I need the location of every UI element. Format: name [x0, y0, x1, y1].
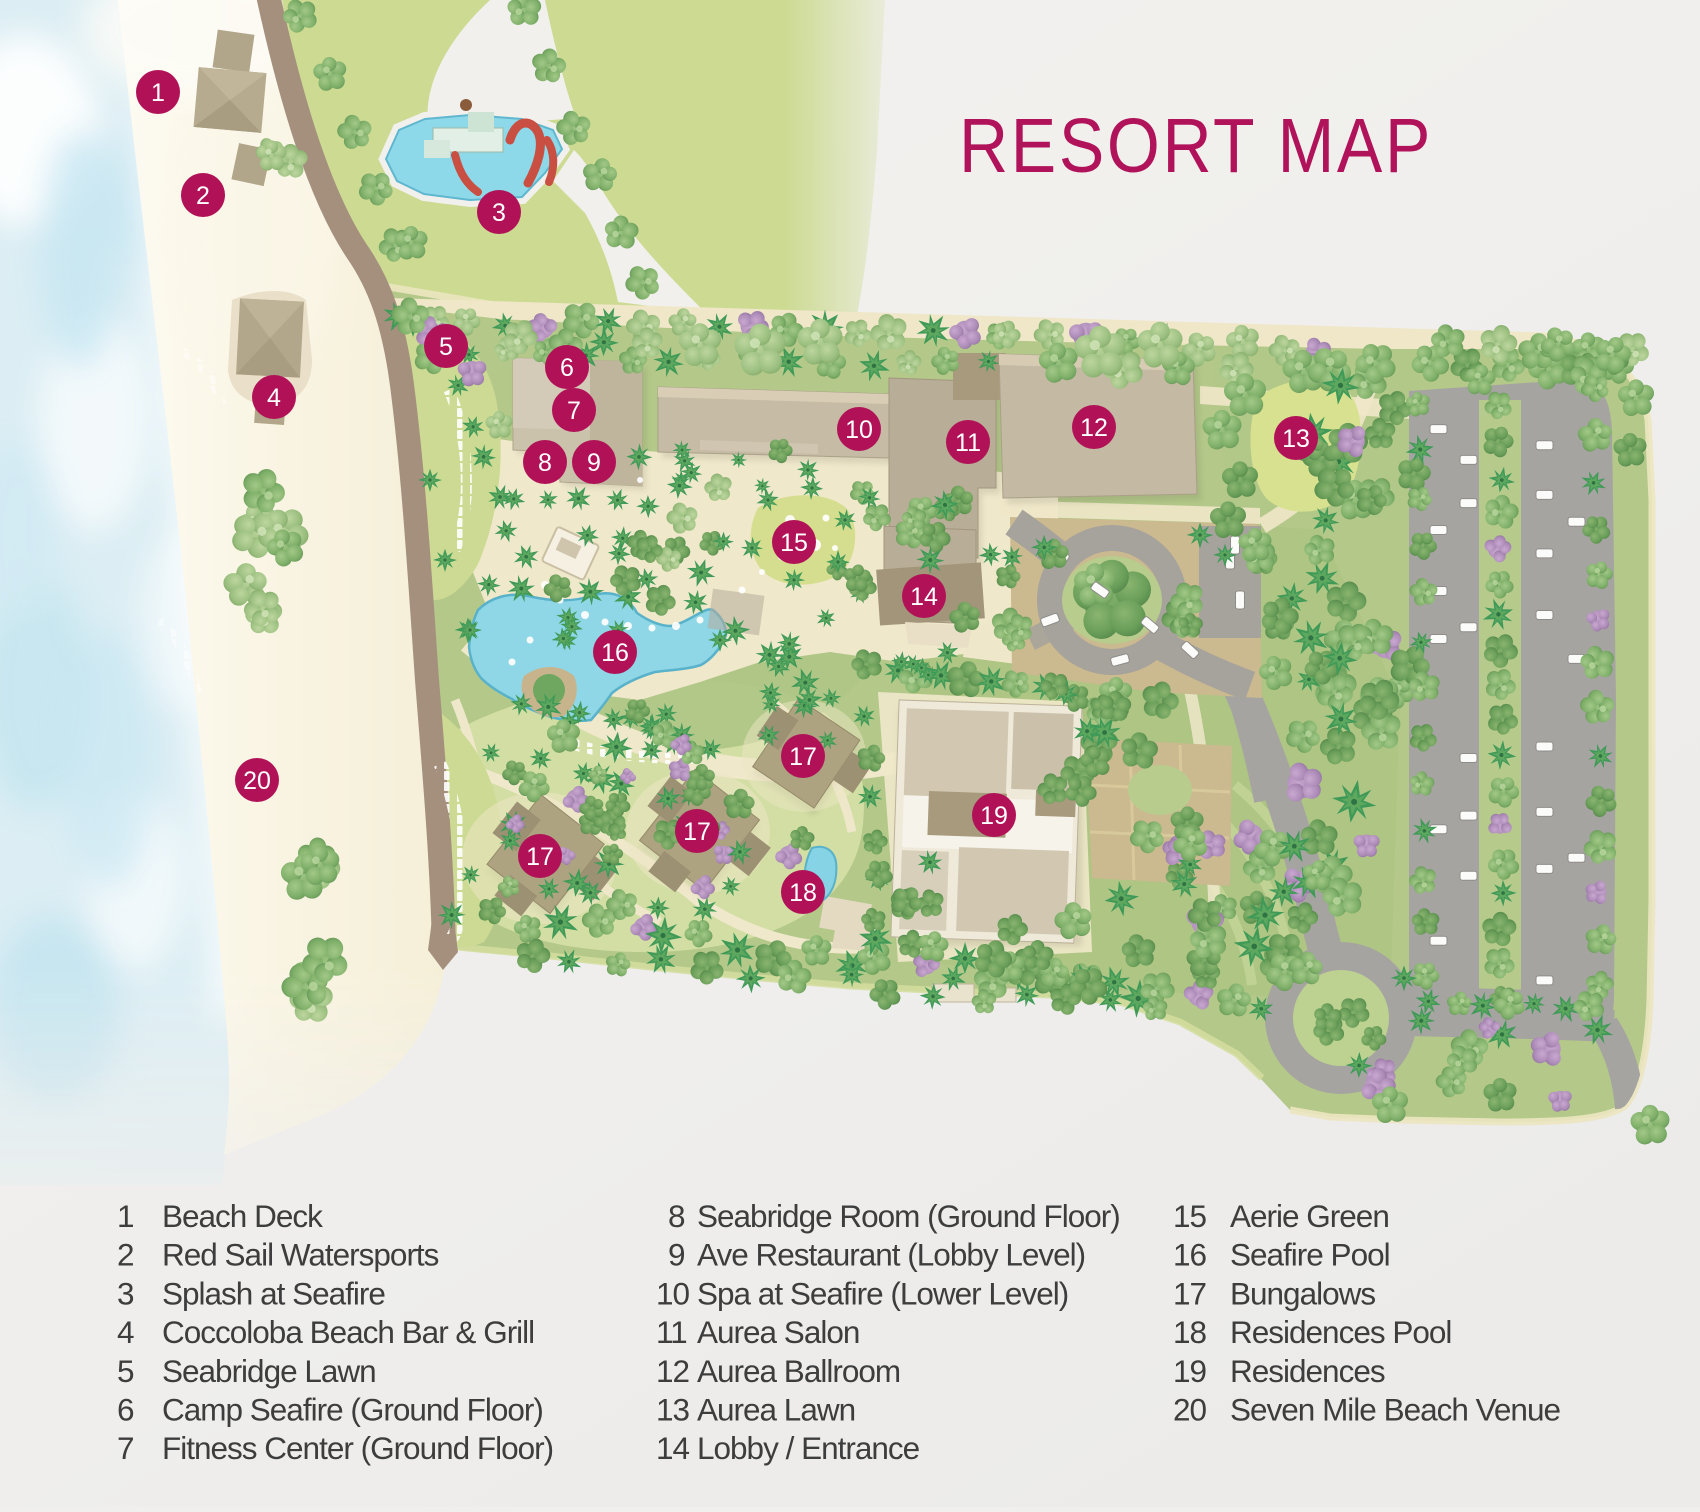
svg-text:20: 20: [1173, 1392, 1207, 1428]
svg-text:Seabridge Room (Ground Floor): Seabridge Room (Ground Floor): [697, 1198, 1120, 1234]
svg-text:7: 7: [117, 1430, 134, 1466]
svg-text:Beach Deck: Beach Deck: [162, 1198, 323, 1234]
svg-text:2: 2: [196, 182, 210, 210]
svg-text:Seven Mile Beach Venue: Seven Mile Beach Venue: [1230, 1392, 1560, 1428]
svg-text:17: 17: [526, 843, 554, 871]
svg-text:1: 1: [117, 1198, 134, 1234]
svg-text:9: 9: [587, 449, 601, 477]
svg-text:Red Sail Watersports: Red Sail Watersports: [162, 1237, 439, 1273]
svg-text:4: 4: [117, 1314, 134, 1350]
svg-text:6: 6: [117, 1392, 134, 1428]
svg-text:18: 18: [1173, 1314, 1207, 1350]
svg-text:4: 4: [267, 384, 281, 412]
svg-text:Residences Pool: Residences Pool: [1230, 1314, 1451, 1350]
svg-text:Aurea Salon: Aurea Salon: [697, 1314, 859, 1350]
svg-text:14: 14: [910, 583, 938, 611]
svg-text:17: 17: [789, 743, 817, 771]
svg-text:8: 8: [538, 449, 552, 477]
svg-text:7: 7: [567, 397, 581, 425]
svg-text:Bungalows: Bungalows: [1230, 1275, 1375, 1311]
svg-text:14: 14: [656, 1430, 690, 1466]
svg-text:Coccoloba Beach Bar & Grill: Coccoloba Beach Bar & Grill: [162, 1314, 534, 1350]
svg-text:10: 10: [845, 416, 873, 444]
svg-text:2: 2: [117, 1237, 134, 1273]
svg-text:3: 3: [492, 199, 506, 227]
svg-text:19: 19: [1173, 1353, 1207, 1389]
svg-text:12: 12: [1080, 414, 1108, 442]
svg-text:5: 5: [117, 1353, 134, 1389]
svg-text:Aurea Ballroom: Aurea Ballroom: [697, 1353, 900, 1389]
svg-text:Fitness Center (Ground Floor): Fitness Center (Ground Floor): [162, 1430, 553, 1466]
svg-text:Seabridge Lawn: Seabridge Lawn: [162, 1353, 376, 1389]
svg-text:6: 6: [560, 354, 574, 382]
svg-text:1: 1: [151, 79, 165, 107]
svg-text:15: 15: [780, 529, 808, 557]
svg-text:11: 11: [656, 1314, 687, 1350]
svg-text:13: 13: [656, 1392, 690, 1428]
svg-text:Lobby / Entrance: Lobby / Entrance: [697, 1430, 920, 1466]
svg-text:Residences: Residences: [1230, 1353, 1385, 1389]
svg-text:Splash at Seafire: Splash at Seafire: [162, 1275, 385, 1311]
svg-text:3: 3: [117, 1275, 134, 1311]
svg-text:9: 9: [668, 1237, 685, 1273]
svg-text:Spa at Seafire (Lower Level): Spa at Seafire (Lower Level): [697, 1275, 1068, 1311]
svg-text:17: 17: [683, 818, 711, 846]
svg-text:5: 5: [439, 333, 453, 361]
svg-text:Ave Restaurant (Lobby Level): Ave Restaurant (Lobby Level): [697, 1237, 1085, 1273]
svg-text:RESORT MAP: RESORT MAP: [959, 103, 1433, 189]
svg-text:Aerie Green: Aerie Green: [1230, 1198, 1389, 1234]
svg-text:Camp Seafire (Ground Floor): Camp Seafire (Ground Floor): [162, 1392, 543, 1428]
svg-text:16: 16: [1173, 1237, 1207, 1273]
svg-text:17: 17: [1173, 1275, 1206, 1311]
svg-text:18: 18: [789, 879, 817, 907]
svg-text:Seafire Pool: Seafire Pool: [1230, 1237, 1390, 1273]
svg-text:16: 16: [601, 639, 629, 667]
svg-text:10: 10: [656, 1275, 690, 1311]
svg-text:8: 8: [668, 1198, 685, 1234]
svg-text:19: 19: [980, 802, 1008, 830]
svg-text:15: 15: [1173, 1198, 1207, 1234]
svg-text:12: 12: [656, 1353, 689, 1389]
svg-text:13: 13: [1282, 425, 1310, 453]
svg-text:11: 11: [955, 429, 981, 457]
svg-text:Aurea Lawn: Aurea Lawn: [697, 1392, 855, 1428]
svg-text:20: 20: [243, 767, 271, 795]
